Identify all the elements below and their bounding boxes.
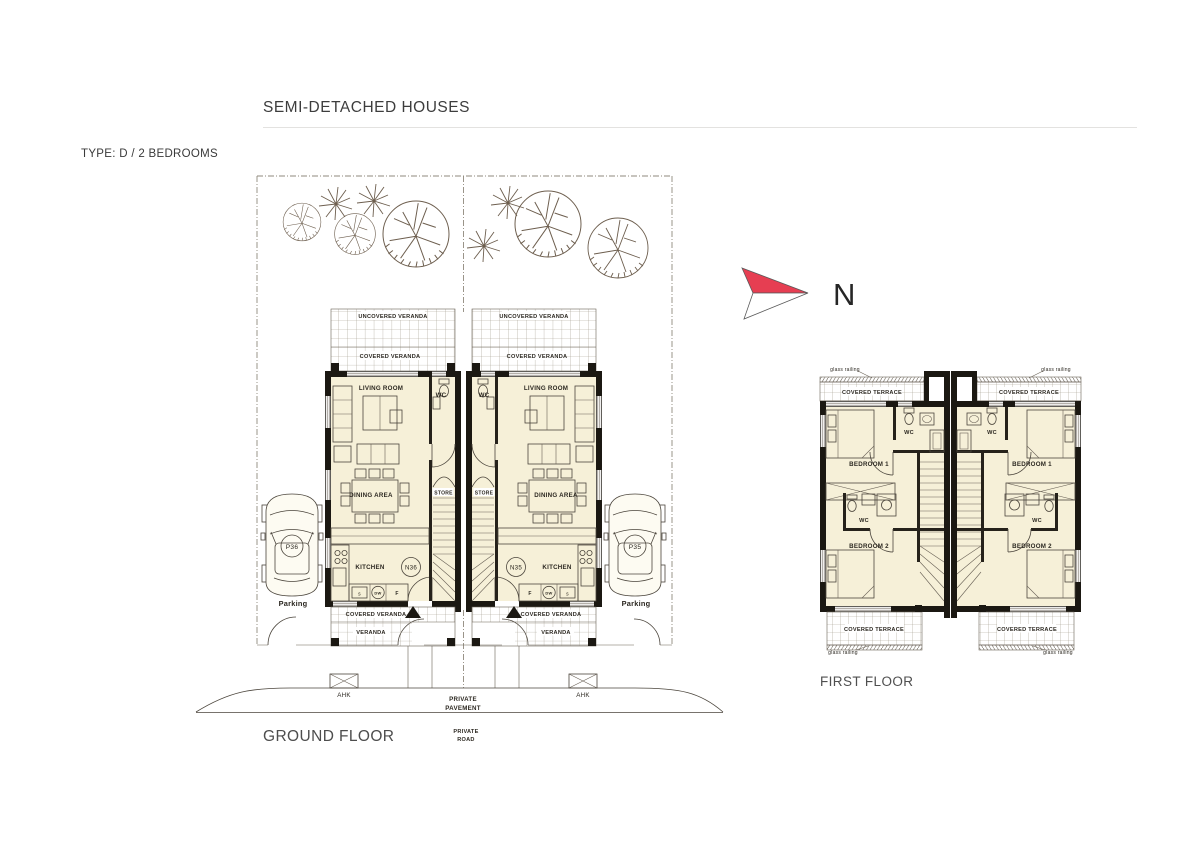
label-glass-railing-bottom-right: glass railing (1043, 650, 1073, 656)
label-dining-area-left: DINING AREA (349, 492, 393, 499)
label-store-right: STORE (475, 491, 494, 497)
label-covered-terrace-top-left: COVERED TERRACE (842, 390, 902, 396)
label-wc-gf-right: WC (479, 392, 490, 399)
label-covered-veranda-right-bottom: COVERED VERANDA (521, 612, 582, 618)
label-fridge-left: F (395, 591, 398, 597)
label-wc-ff-lower-right: WC (1032, 518, 1042, 524)
north-arrow-red-blade (742, 268, 808, 293)
label-covered-terrace-bottom-right: COVERED TERRACE (997, 627, 1057, 633)
first-floor-plan: glass railing glass railing COVERED TERR… (820, 367, 1081, 656)
label-bedroom2-left: BEDROOM 2 (849, 543, 889, 550)
label-glass-railing-bottom-left: glass railing (828, 650, 858, 656)
label-dishwasher-left: DW (374, 591, 381, 596)
label-covered-veranda-left-bottom: COVERED VERANDA (346, 612, 407, 618)
label-ahk-left: AHK (337, 692, 351, 699)
label-covered-veranda-left-top: COVERED VERANDA (360, 354, 421, 360)
label-parking-left: Parking (279, 599, 308, 608)
ground-floor-plan: UNCOVERED VERANDA UNCOVERED VERANDA COVE… (196, 176, 723, 743)
label-bedroom1-right: BEDROOM 1 (1012, 461, 1052, 468)
floorplan-drawing: UNCOVERED VERANDA UNCOVERED VERANDA COVE… (0, 0, 1200, 848)
label-dining-area-right: DINING AREA (534, 492, 578, 499)
plot-boundary (257, 176, 672, 688)
label-private-pavement-1: PRIVATE (449, 696, 477, 703)
label-kitchen-right: KITCHEN (542, 564, 572, 571)
first-floor-caption: FIRST FLOOR (820, 674, 913, 689)
label-dishwasher-right: DW (545, 591, 552, 596)
label-veranda-right: VERANDA (541, 630, 570, 636)
label-private-pavement-2: PAVEMENT (445, 705, 480, 712)
label-glass-railing-top-right: glass railing (1041, 367, 1071, 373)
label-house-no-left: N36 (405, 565, 417, 572)
gf-unit-left (325, 309, 461, 688)
label-covered-veranda-right-top: COVERED VERANDA (507, 354, 568, 360)
label-veranda-left: VERANDA (356, 630, 385, 636)
blueprint-page: SEMI-DETACHED HOUSES TYPE: D / 2 BEDROOM… (0, 0, 1200, 848)
label-living-room-left: LIVING ROOM (359, 385, 403, 392)
label-sink-right: s (566, 592, 569, 598)
label-uncovered-veranda-right: UNCOVERED VERANDA (499, 314, 568, 320)
label-uncovered-veranda-left: UNCOVERED VERANDA (358, 314, 427, 320)
label-wc-ff-upper-left: WC (904, 430, 914, 436)
label-wc-ff-lower-left: WC (859, 518, 869, 524)
label-bedroom2-right: BEDROOM 2 (1012, 543, 1052, 550)
ff-unit-left (820, 371, 950, 650)
label-private-road-1: PRIVATE (453, 729, 478, 735)
label-covered-terrace-top-right: COVERED TERRACE (999, 390, 1059, 396)
ff-unit-right (951, 371, 1081, 650)
ground-floor-caption: GROUND FLOOR (263, 728, 394, 746)
north-arrow-white-blade (744, 293, 808, 319)
label-parking-no-left: P36 (286, 544, 299, 551)
label-bedroom1-left: BEDROOM 1 (849, 461, 889, 468)
label-covered-terrace-bottom-left: COVERED TERRACE (844, 627, 904, 633)
label-sink-left: s (358, 592, 361, 598)
north-letter: N (833, 277, 855, 312)
label-private-road-2: ROAD (457, 737, 474, 743)
garden-trees (283, 184, 648, 278)
label-wc-ff-upper-right: WC (987, 430, 997, 436)
label-store-left: STORE (434, 491, 453, 497)
label-ahk-right: AHK (576, 692, 590, 699)
north-arrow: N (742, 268, 855, 319)
label-living-room-right: LIVING ROOM (524, 385, 568, 392)
label-fridge-right: F (528, 591, 531, 597)
label-kitchen-left: KITCHEN (355, 564, 385, 571)
label-wc-gf-left: WC (436, 392, 447, 399)
label-house-no-right: N35 (510, 565, 522, 572)
label-parking-no-right: P35 (629, 544, 642, 551)
label-parking-right: Parking (622, 599, 651, 608)
label-glass-railing-top-left: glass railing (830, 367, 860, 373)
